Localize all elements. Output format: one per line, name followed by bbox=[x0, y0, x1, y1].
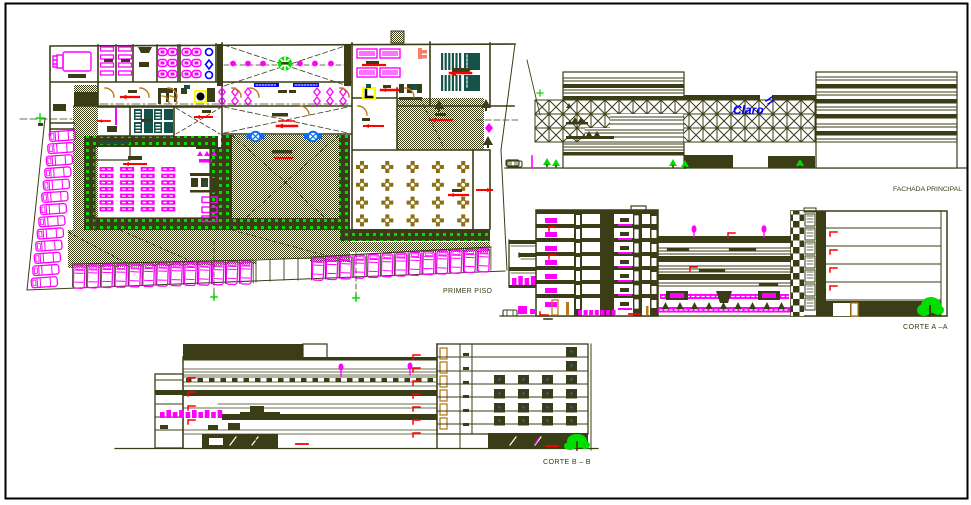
svg-text:CORTE A –A: CORTE A –A bbox=[903, 322, 948, 331]
svg-text:FACHADA PRINCIPAL: FACHADA PRINCIPAL bbox=[893, 186, 962, 193]
svg-text:Claro: Claro bbox=[733, 103, 764, 117]
svg-text:CORTE B – B: CORTE B – B bbox=[543, 457, 591, 466]
svg-text:PRIMER PISO: PRIMER PISO bbox=[443, 288, 492, 295]
